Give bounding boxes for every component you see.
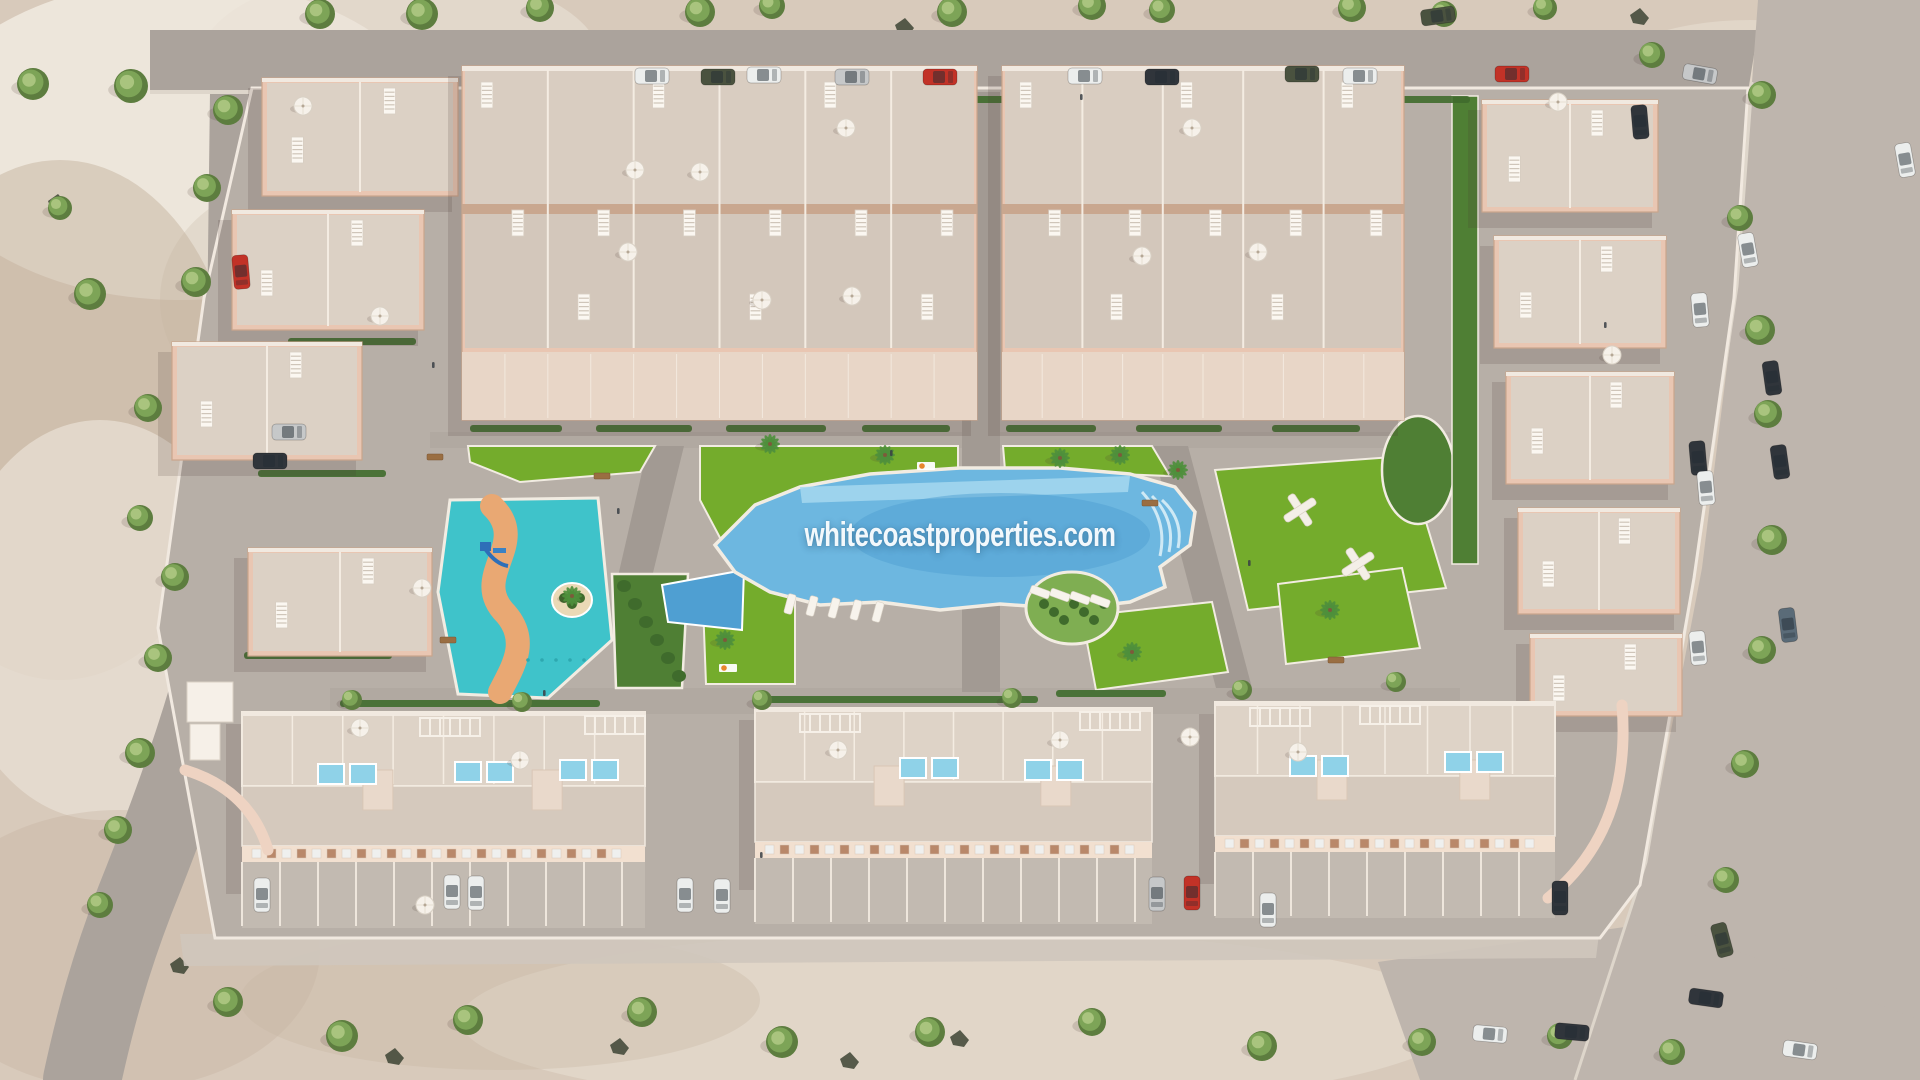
facade-window [1480,839,1489,848]
car [1689,440,1708,475]
facade-window [582,849,591,858]
facade-window [1450,839,1459,848]
site-plan-render: whitecoastproperties.com [0,0,1920,1080]
facade-window [1050,845,1059,854]
facade-window [462,849,471,858]
facade-window [1495,839,1504,848]
facade-window [915,845,924,854]
rooftop-stair [1508,156,1520,182]
terrace-mini-pool [1477,752,1503,772]
facade-window [1095,845,1104,854]
rooftop-stair [276,602,288,628]
car [1149,877,1165,911]
rooftop-stair [481,82,493,108]
person [1080,94,1083,100]
entrance-gate [187,682,233,722]
car [701,69,735,85]
car [677,878,693,912]
rooftop-stair [1129,210,1141,236]
rooftop-stair [1591,110,1603,136]
facade-window [840,845,849,854]
car [1184,876,1200,910]
facade-window [252,849,261,858]
car [1691,292,1710,327]
facade-window [1270,839,1279,848]
facade-window [1435,839,1444,848]
pergola [1250,708,1310,726]
facade-window [432,849,441,858]
car [1285,66,1319,82]
facade-window [1525,839,1534,848]
facade-window [1315,839,1324,848]
facade-window [960,845,969,854]
facade-window [1390,839,1399,848]
house-a1 [248,78,458,212]
facade-window [1420,839,1429,848]
facade-window [930,845,939,854]
car [835,69,869,85]
facade-window [1300,839,1309,848]
terrace-mini-pool [900,758,926,778]
garden-plant [661,652,675,664]
rooftop-stair [1180,82,1192,108]
facade-window [522,849,531,858]
facade-window [795,845,804,854]
rooftop-stair [351,220,363,246]
facade-window [1225,839,1234,848]
rooftop-stair [261,270,273,296]
facade-window [1360,839,1369,848]
rooftop-stair [1020,82,1032,108]
car [232,254,251,289]
facade-window [780,845,789,854]
house-a4 [234,548,432,672]
rooftop-stair [1531,428,1543,454]
lawn-logo-marker [719,664,737,672]
entrance-gate [190,724,220,760]
rooftop-stair [1601,246,1613,272]
facade-window [612,849,621,858]
rooftop-stair [362,558,374,584]
rooftop-stair [578,294,590,320]
facade-window [477,849,486,858]
house-r2 [1480,236,1666,364]
pergola [585,716,645,734]
facade-window [945,845,954,854]
rooftop-stair [1290,210,1302,236]
facade-window [597,849,606,858]
facade-window [1330,839,1339,848]
terrace-mini-pool [1025,760,1051,780]
garden-plant [650,634,664,646]
facade-window [327,849,336,858]
facade-window [297,849,306,858]
pergola [1080,712,1140,730]
person [617,508,620,514]
pergola [420,718,480,736]
facade-window [1255,839,1264,848]
car [1260,893,1276,927]
car [1552,881,1568,915]
facade-window [447,849,456,858]
car [635,68,669,84]
rooftop-stair [1111,294,1123,320]
facade-window [1035,845,1044,854]
garden-plant [617,580,631,592]
car [253,453,287,469]
person [760,852,763,858]
facade-window [855,845,864,854]
facade-window [372,849,381,858]
car [1554,1023,1589,1042]
facade-window [492,849,501,858]
facade-window [825,845,834,854]
facade-window [1285,839,1294,848]
facade-window [810,845,819,854]
facade-window [1375,839,1384,848]
facade-window [567,849,576,858]
car [747,67,781,83]
bottom-block-east [1199,702,1555,918]
rooftop-stair [384,88,396,114]
car [272,424,306,440]
rooftop-stair [941,210,953,236]
car [923,69,957,85]
townhouse-block-a [448,66,977,436]
bottom-block-west [226,712,645,928]
facade-window [342,849,351,858]
bottom-block-center [739,708,1152,924]
facade-window [900,845,909,854]
garden-plant [639,616,653,628]
car [1068,68,1102,84]
car [1343,68,1377,84]
person [890,450,893,456]
pergola [1360,706,1420,724]
park-bench [440,637,456,643]
pergola [800,714,860,732]
terrace-mini-pool [1057,760,1083,780]
car [254,878,270,912]
car [1631,104,1650,139]
rooftop-stair [201,401,213,427]
rooftop-stair [921,294,933,320]
playground [480,542,491,551]
rooftop-stair [291,137,303,163]
person [543,690,546,696]
facade-window [1405,839,1414,848]
terrace-mini-pool [1322,756,1348,776]
facade-window [870,845,879,854]
person [1604,322,1607,328]
car [1495,66,1529,82]
facade-window [1125,845,1134,854]
car [1145,69,1179,85]
person [432,362,435,368]
rooftop-stair [1553,675,1565,701]
rooftop-stair [598,210,610,236]
park-bench [594,473,610,479]
rooftop-stair [1624,644,1636,670]
rooftop-stair [512,210,524,236]
rooftop-stair [855,210,867,236]
rooftop-stair [769,210,781,236]
rooftop-stair [1049,210,1061,236]
facade-window [1005,845,1014,854]
garden-plant [628,598,642,610]
facade-window [402,849,411,858]
facade-window [537,849,546,858]
lawn-logo-marker [917,462,935,470]
facade-window [885,845,894,854]
rooftop-stair [1542,561,1554,587]
facade-window [975,845,984,854]
rooftop-stair [290,352,302,378]
car [1472,1025,1507,1044]
rooftop-stair [1618,518,1630,544]
car [714,879,730,913]
shrub-row [340,700,600,707]
terrace-mini-pool [932,758,958,778]
rooftop-stair [1341,82,1353,108]
shrub-row [1056,690,1166,697]
house-r4 [1504,508,1680,630]
facade-window [417,849,426,858]
terrace-mini-pool [455,762,481,782]
person [1248,560,1251,566]
car [1697,470,1716,505]
terrace-mini-pool [1445,752,1471,772]
facade-window [1020,845,1029,854]
facade-window [1065,845,1074,854]
facade-window [765,845,774,854]
driveway-strip [755,858,1152,924]
lawn [1278,568,1420,664]
facade-window [1080,845,1089,854]
house-r1 [1468,100,1658,228]
facade-window [1110,845,1119,854]
rooftop-stair [1370,210,1382,236]
house-r3 [1492,372,1674,500]
facade-window [357,849,366,858]
facade-window [1345,839,1354,848]
car [468,876,484,910]
rooftop-stair [1209,210,1221,236]
facade-window [312,849,321,858]
car [1689,630,1708,665]
stair-bulkhead [532,770,562,810]
rooftop-stair [683,210,695,236]
park-bench [1142,500,1158,506]
rooftop-stair [653,82,665,108]
facade-window [387,849,396,858]
rooftop-stair [1271,294,1283,320]
car [444,875,460,909]
terrace-mini-pool [350,764,376,784]
facade-window [1465,839,1474,848]
rooftop-stair [1610,382,1622,408]
facade-window [1510,839,1519,848]
facade-window [507,849,516,858]
facade-window [1240,839,1249,848]
aerial-scene [0,0,1920,1080]
park-bench [427,454,443,460]
garden-plant [672,670,686,682]
terrace-mini-pool [560,760,586,780]
terrace-mini-pool [592,760,618,780]
facade-window [990,845,999,854]
terrace-mini-pool [318,764,344,784]
rooftop-stair [1520,292,1532,318]
facade-window [552,849,561,858]
rooftop-stair [824,82,836,108]
park-bench [1328,657,1344,663]
facade-window [282,849,291,858]
